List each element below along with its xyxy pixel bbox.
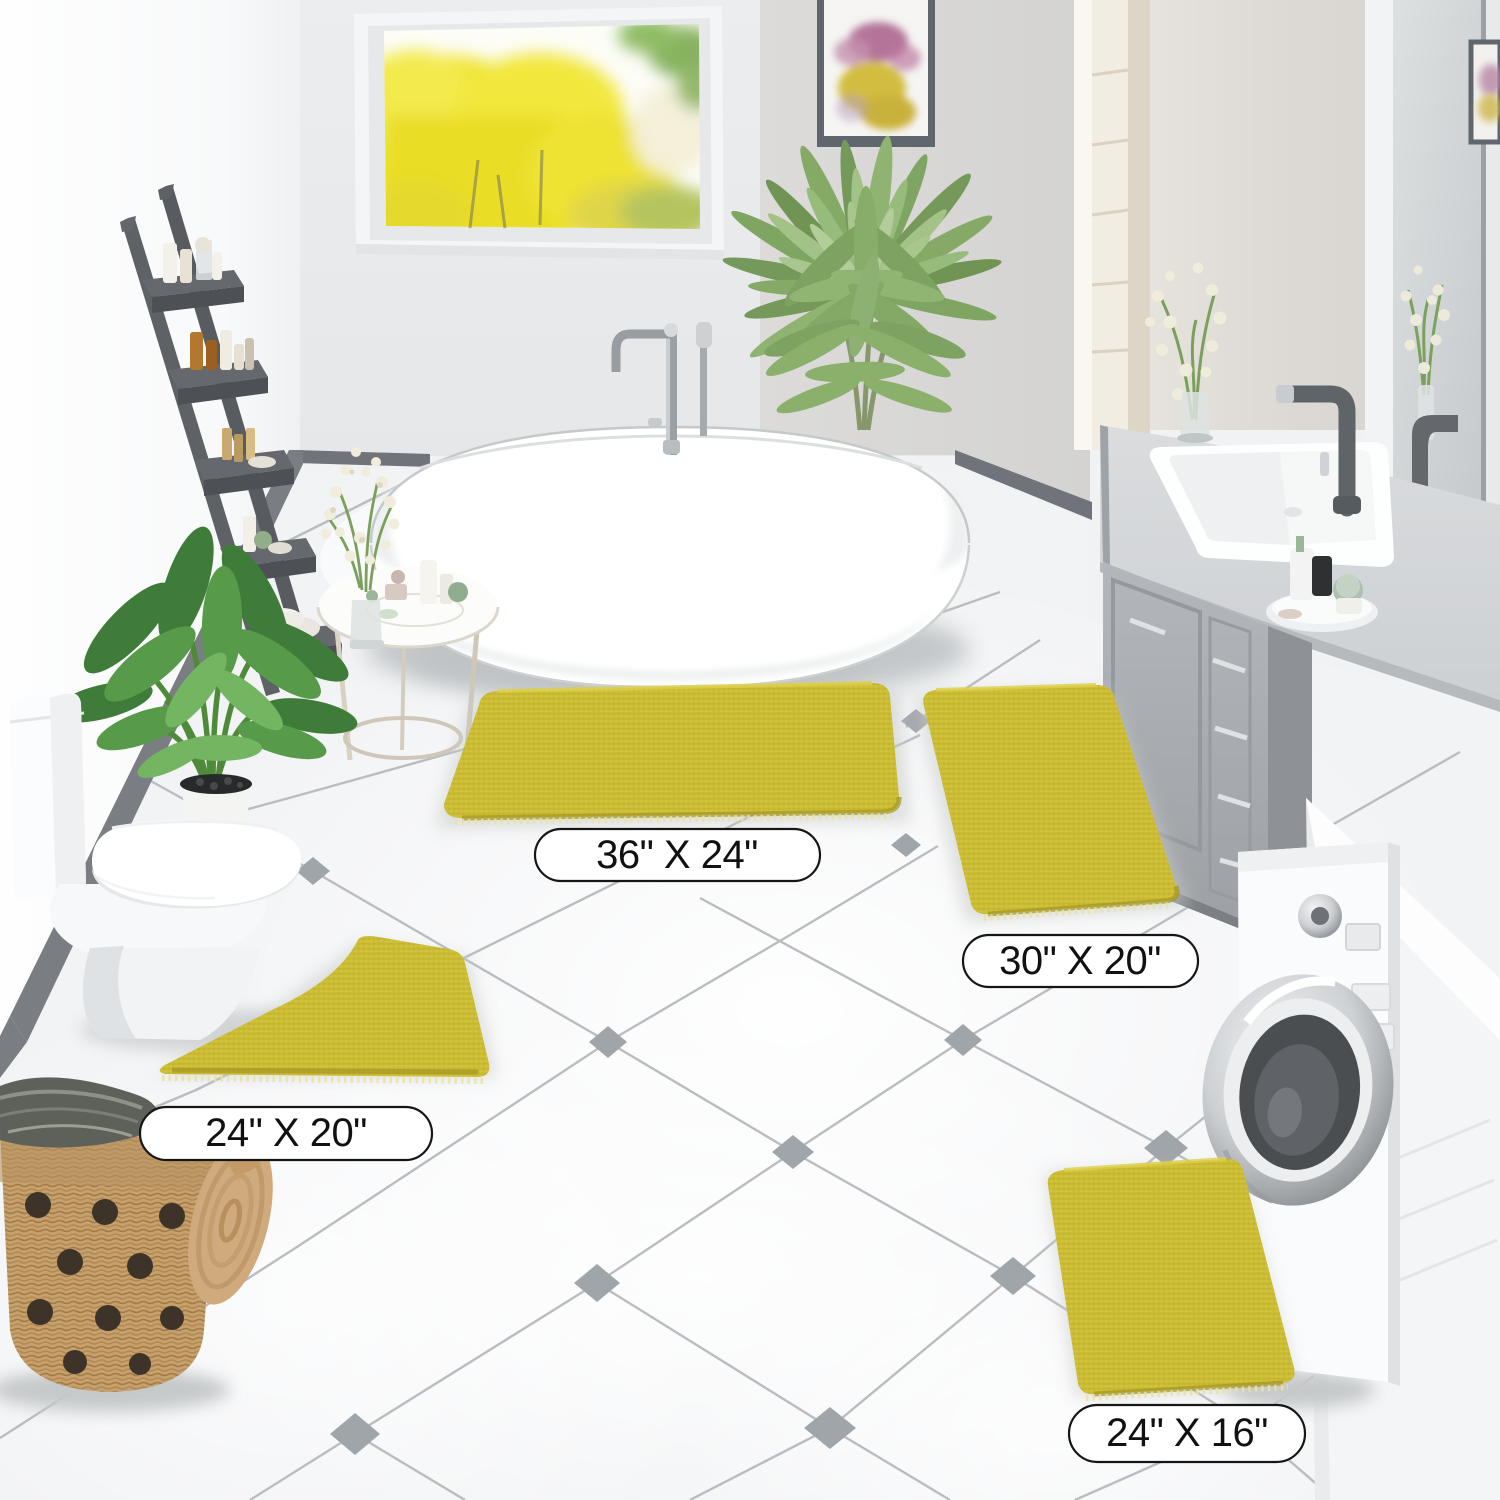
svg-text:30" X 20": 30" X 20" — [999, 939, 1161, 983]
svg-text:24" X 20": 24" X 20" — [205, 1111, 367, 1155]
svg-text:24" X 16": 24" X 16" — [1106, 1411, 1268, 1455]
svg-text:36" X 24": 36" X 24" — [596, 833, 758, 877]
